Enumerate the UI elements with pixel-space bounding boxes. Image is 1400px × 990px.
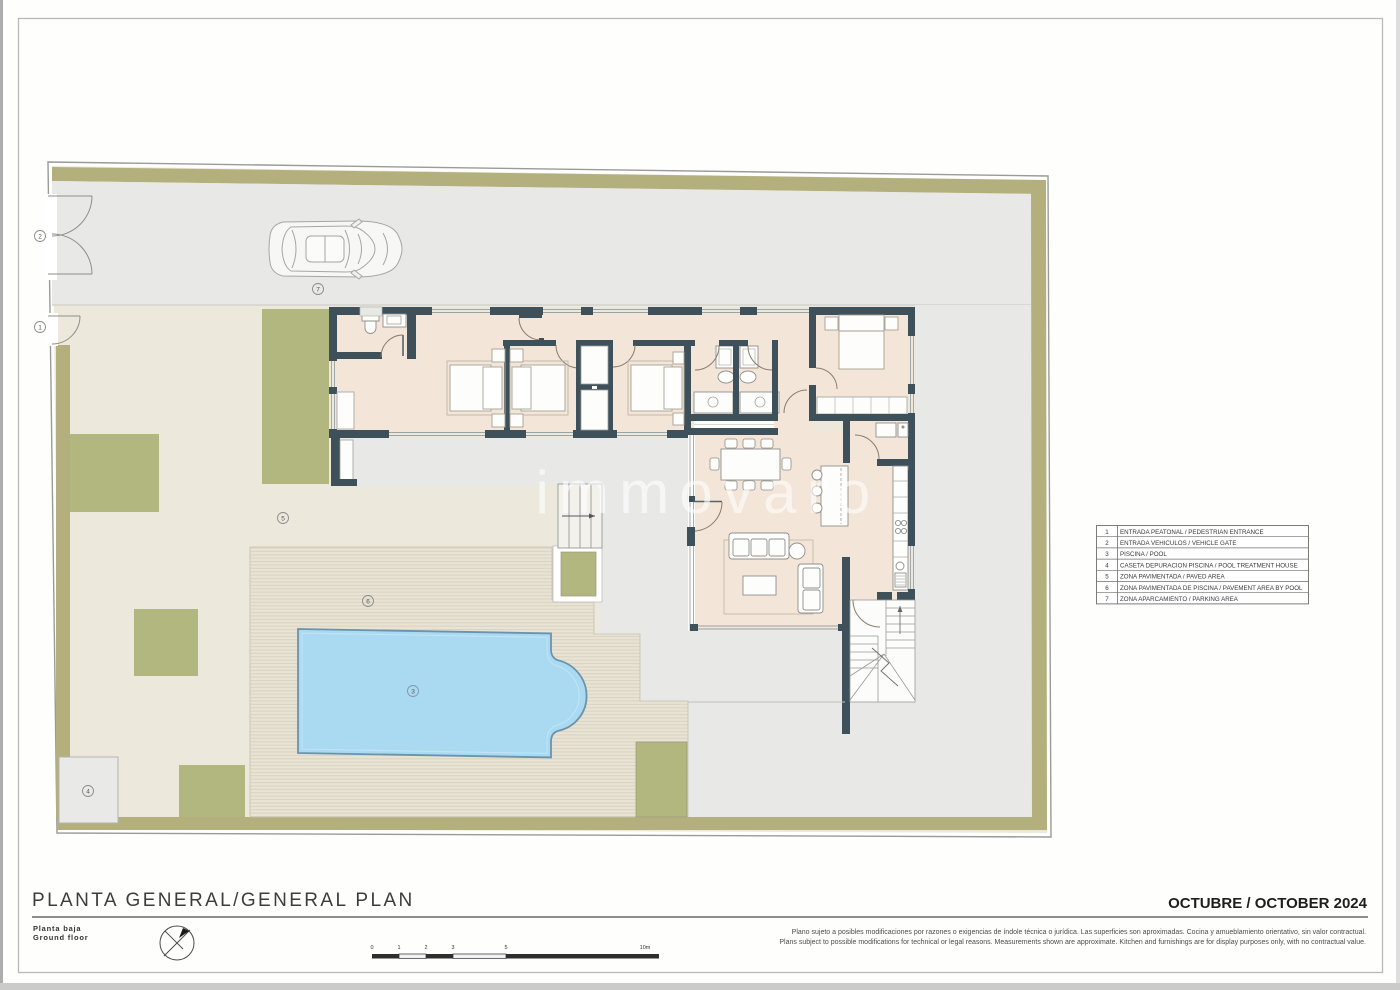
svg-text:4: 4	[86, 789, 90, 796]
svg-text:1: 1	[397, 945, 400, 951]
svg-text:ZONA APARCAMIENTO / PARKING AR: ZONA APARCAMIENTO / PARKING AREA	[1120, 596, 1239, 603]
svg-text:2: 2	[38, 234, 42, 241]
svg-text:Ground floor: Ground floor	[33, 933, 88, 942]
svg-text:Plano sujeto a posibles modifi: Plano sujeto a posibles modificaciones p…	[792, 929, 1366, 936]
svg-text:CASETA DEPURACION PISCINA / PO: CASETA DEPURACION PISCINA / POOL TREATME…	[1120, 562, 1298, 569]
svg-text:5: 5	[1105, 574, 1109, 581]
svg-text:1: 1	[1105, 529, 1109, 536]
svg-text:7: 7	[316, 287, 320, 294]
svg-text:4: 4	[1105, 562, 1109, 569]
svg-text:2: 2	[424, 945, 427, 951]
svg-text:immovaro: immovaro	[536, 459, 881, 526]
svg-text:ENTRADA VEHICULOS / VEHICLE GA: ENTRADA VEHICULOS / VEHICLE GATE	[1120, 540, 1236, 547]
svg-text:5: 5	[504, 945, 507, 951]
svg-text:7: 7	[1105, 596, 1109, 603]
svg-text:1: 1	[38, 325, 42, 332]
svg-text:3: 3	[411, 689, 415, 696]
svg-text:6: 6	[366, 599, 370, 606]
svg-text:ZONA PAVIMENTADA / PAVED AREA: ZONA PAVIMENTADA / PAVED AREA	[1120, 574, 1226, 581]
svg-text:ZONA PAVIMENTADA DE PISCINA /: ZONA PAVIMENTADA DE PISCINA / PAVEMENT A…	[1120, 585, 1303, 592]
svg-text:PLANTA GENERAL/GENERAL PLAN: PLANTA GENERAL/GENERAL PLAN	[32, 890, 415, 911]
svg-text:Plans subject to possible modi: Plans subject to possible modifications …	[779, 939, 1366, 946]
svg-text:ENTRADA PEATONAL / PEDESTRIAN: ENTRADA PEATONAL / PEDESTRIAN ENTRANCE	[1120, 529, 1264, 536]
svg-text:5: 5	[281, 516, 285, 523]
svg-text:Planta baja: Planta baja	[33, 924, 81, 933]
svg-text:10m: 10m	[640, 945, 651, 951]
svg-text:6: 6	[1105, 585, 1109, 592]
svg-text:2: 2	[1105, 540, 1109, 547]
svg-text:3: 3	[1105, 551, 1109, 558]
svg-text:3: 3	[451, 945, 454, 951]
svg-text:PISCINA / POOL: PISCINA / POOL	[1120, 551, 1167, 558]
svg-text:OCTUBRE / OCTOBER 2024: OCTUBRE / OCTOBER 2024	[1168, 895, 1368, 912]
svg-text:0: 0	[370, 945, 373, 951]
